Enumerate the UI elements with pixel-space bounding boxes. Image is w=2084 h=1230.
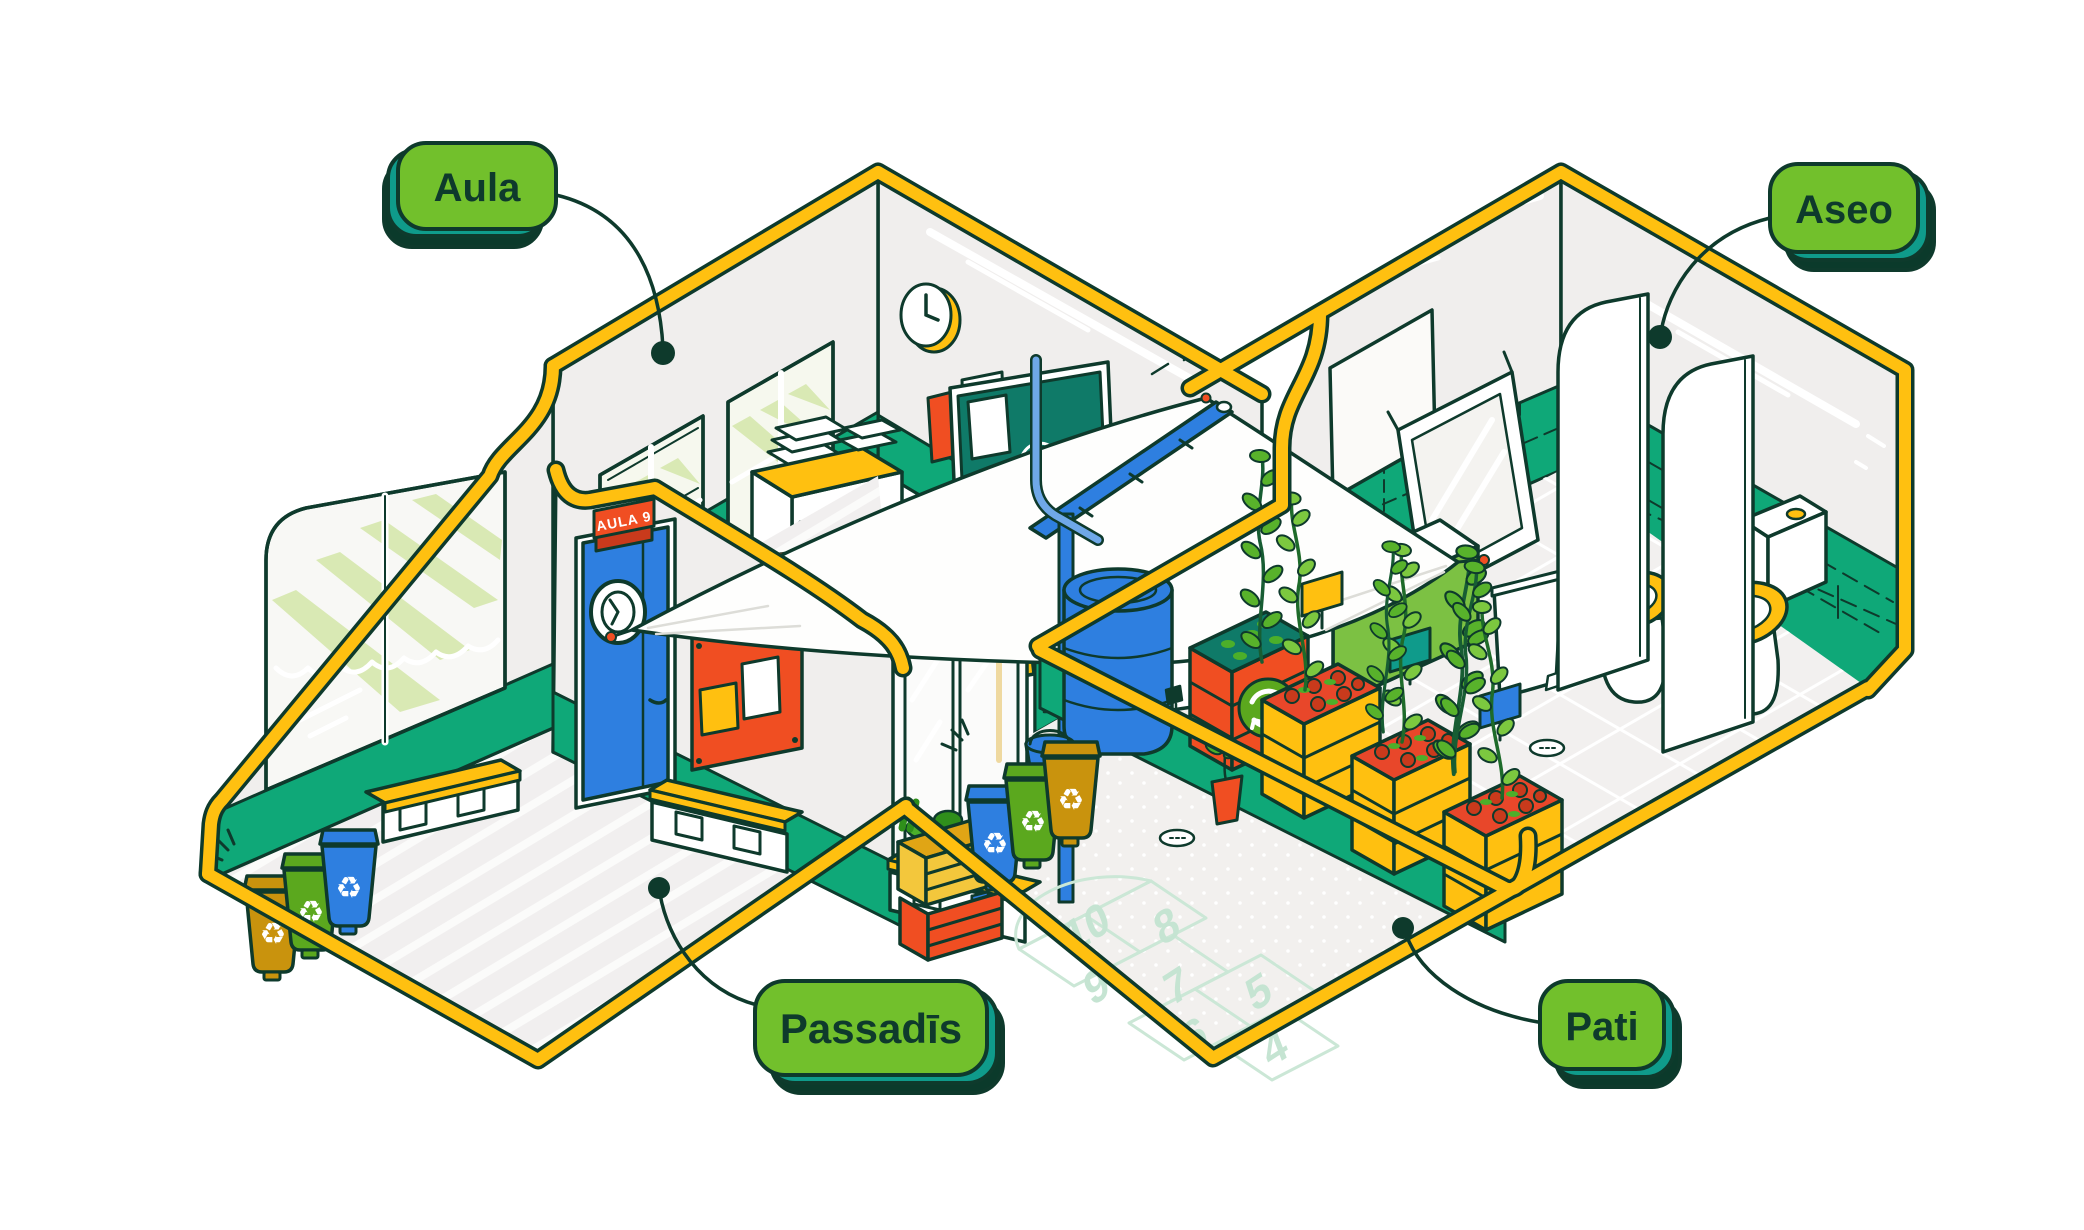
school-illustration: ♻ (0, 0, 2084, 1230)
label-pati-text: Pati (1565, 1005, 1638, 1049)
connector-dot (648, 877, 670, 899)
toilet-partition (1558, 294, 1648, 690)
toilet-partition (1663, 356, 1753, 752)
board-paper-white (742, 657, 780, 719)
connector-dot (1648, 325, 1672, 349)
recycling-bin-mustard (1042, 742, 1100, 846)
recycling-bin-blue (320, 830, 378, 934)
label-aseo-text: Aseo (1795, 188, 1893, 232)
door-aula9 (576, 519, 675, 808)
connector-dot (651, 341, 675, 365)
board-paper-yellow (700, 683, 738, 735)
label-aula-text: Aula (434, 166, 521, 210)
label-passadis-text: Passadīs (780, 1005, 962, 1052)
floor-drain-icon (1160, 830, 1194, 846)
connector-dot (1392, 917, 1414, 939)
pinned-paper (968, 395, 1010, 459)
floor-drain-icon (1530, 740, 1564, 756)
isometric-scene: ♻ (0, 0, 2084, 1230)
